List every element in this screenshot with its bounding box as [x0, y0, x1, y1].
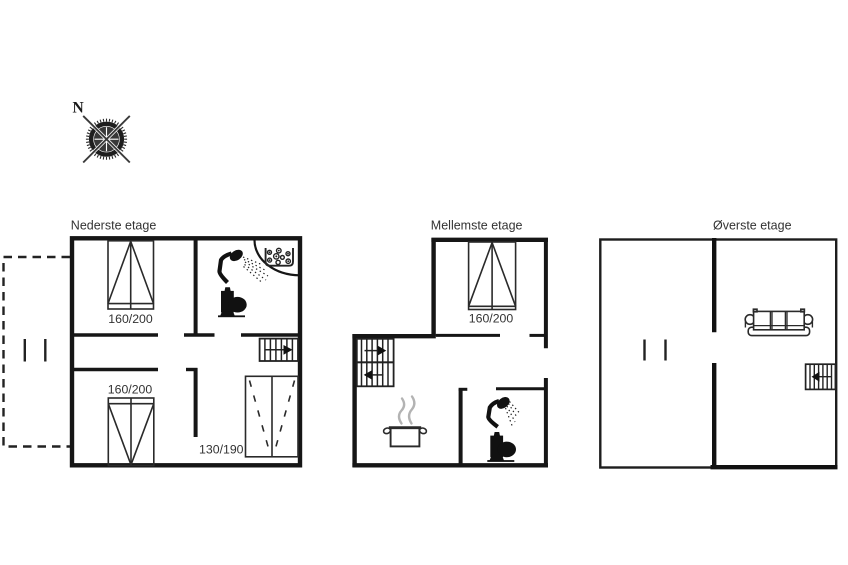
svg-text:130/190: 130/190: [199, 443, 244, 457]
svg-text:160/200: 160/200: [108, 312, 153, 326]
svg-text:Nederste etage: Nederste etage: [71, 219, 157, 233]
svg-text:Mellemste etage: Mellemste etage: [431, 219, 523, 233]
svg-text:160/200: 160/200: [469, 312, 514, 326]
svg-text:Øverste etage: Øverste etage: [713, 219, 792, 233]
svg-text:160/200: 160/200: [108, 383, 153, 397]
svg-text:N: N: [73, 100, 84, 117]
